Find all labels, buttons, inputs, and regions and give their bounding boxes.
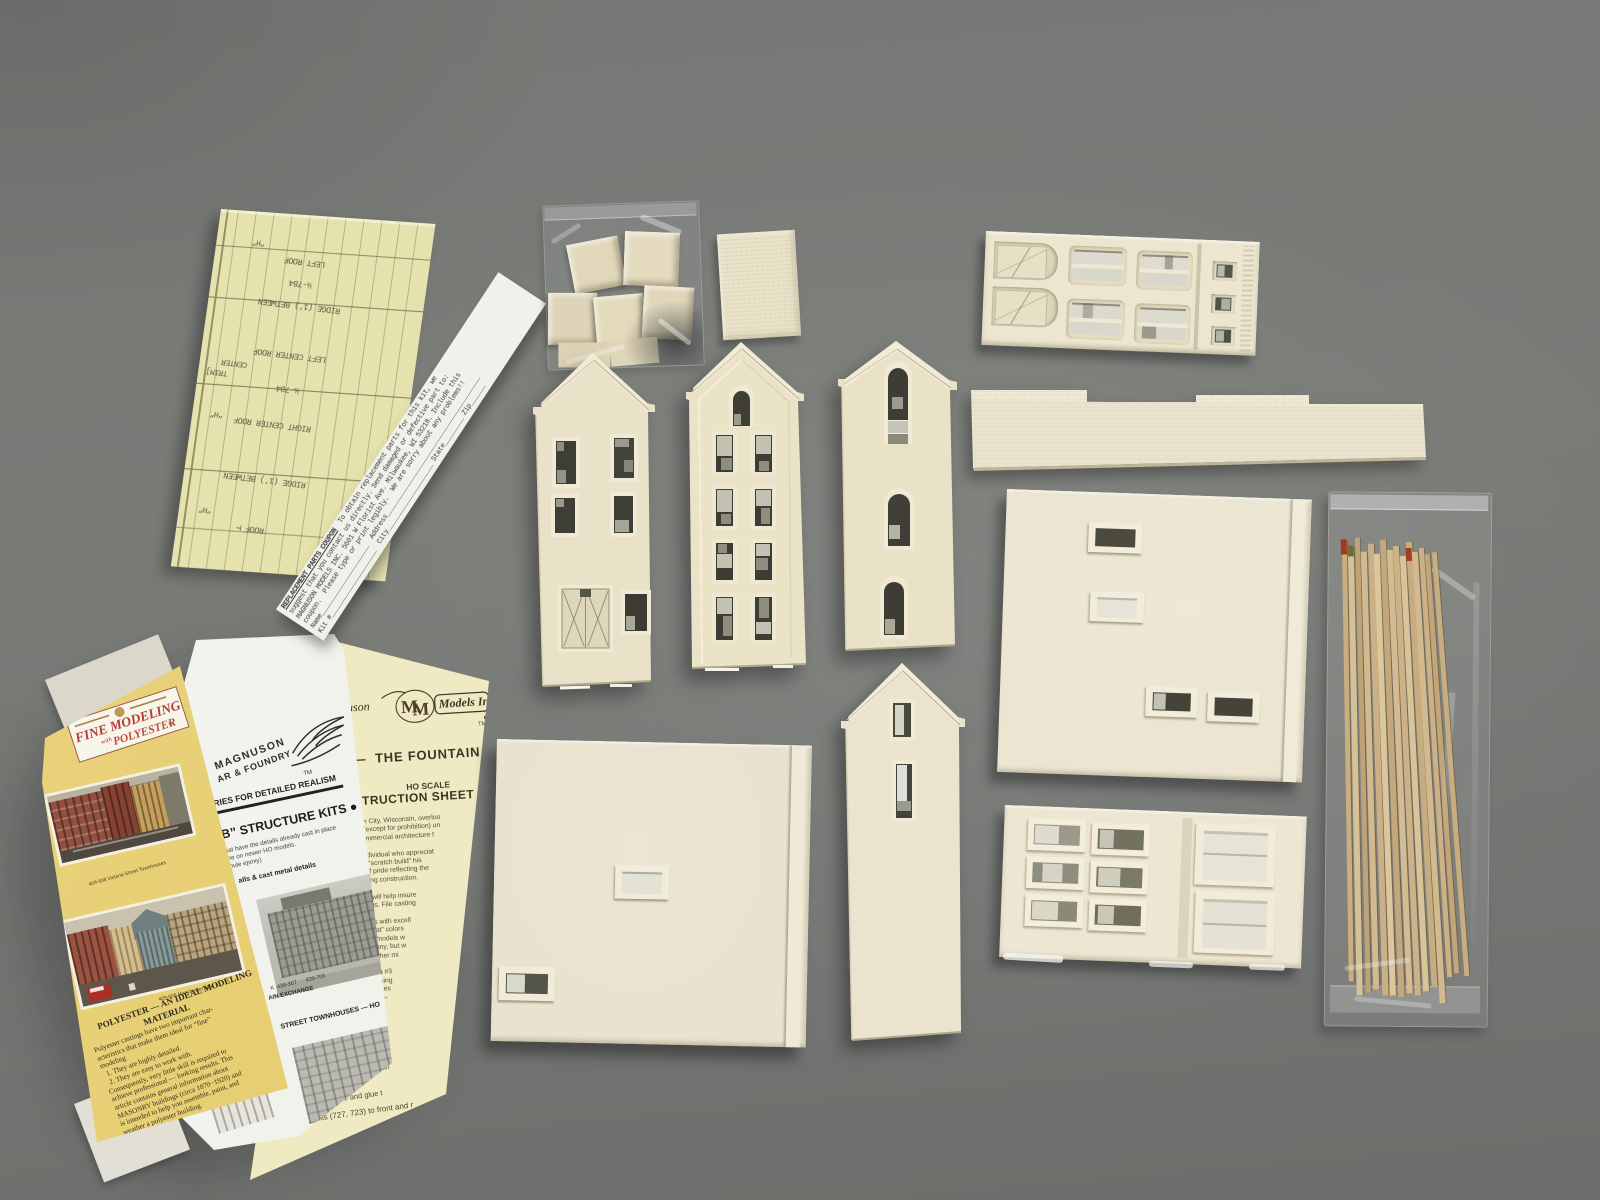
svg-text:with: with — [100, 736, 113, 746]
svg-text:Models Inc.: Models Inc. — [437, 693, 490, 711]
svg-text:M: M — [412, 698, 430, 719]
svg-text:TM: TM — [478, 721, 487, 727]
svg-text:TM: TM — [303, 769, 313, 777]
